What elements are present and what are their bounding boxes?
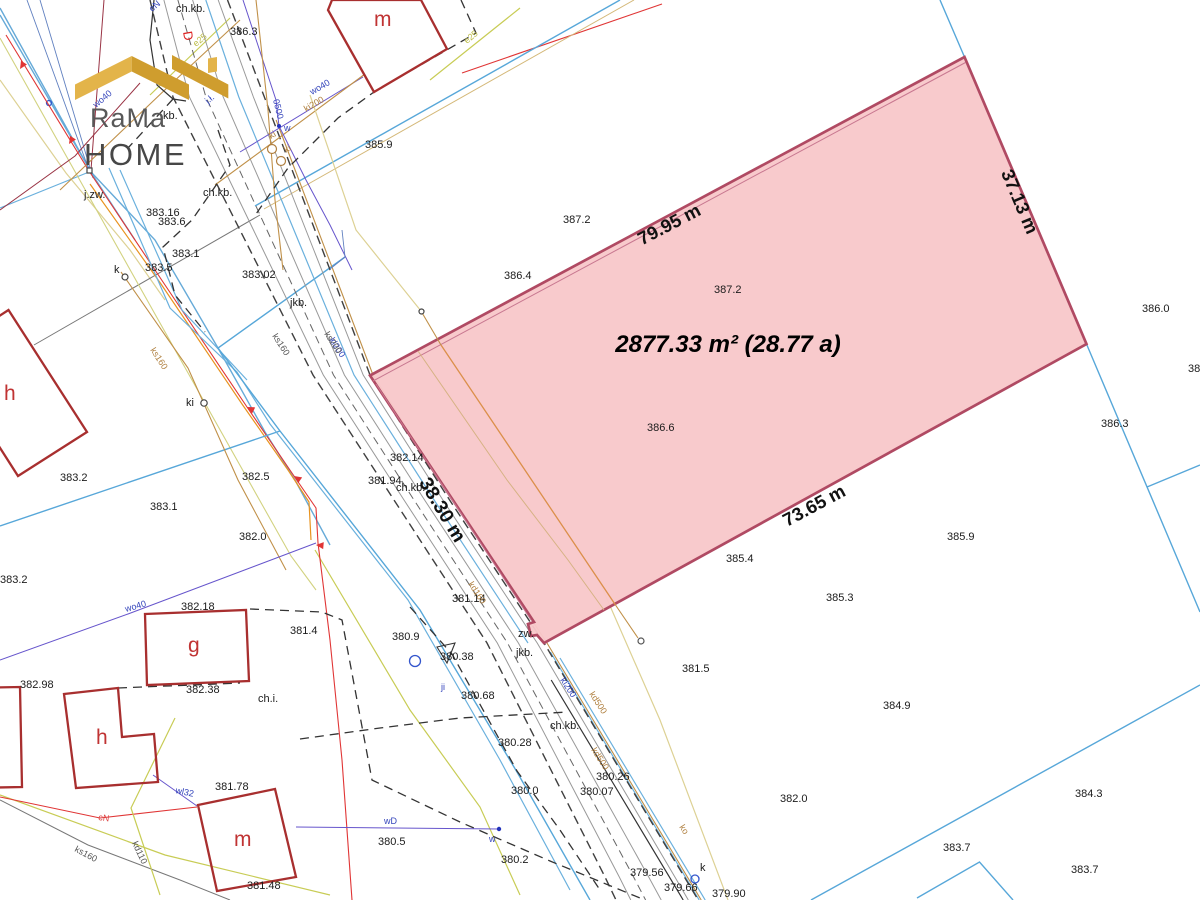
svg-text:jkb.: jkb. (515, 647, 533, 659)
svg-text:379.66: 379.66 (664, 882, 698, 894)
svg-text:380.28: 380.28 (498, 737, 532, 749)
svg-text:g: g (188, 634, 200, 657)
svg-text:380.5: 380.5 (378, 836, 406, 848)
svg-text:386.4: 386.4 (504, 270, 532, 282)
svg-text:h: h (4, 382, 16, 405)
svg-text:k: k (700, 862, 706, 874)
svg-text:383.02: 383.02 (242, 269, 276, 281)
svg-text:380.68: 380.68 (461, 690, 495, 702)
svg-text:387.2: 387.2 (563, 214, 591, 226)
svg-text:386.3: 386.3 (1101, 418, 1129, 430)
svg-text:ji: ji (440, 682, 445, 692)
svg-text:383.7: 383.7 (1071, 864, 1099, 876)
svg-text:385.9: 385.9 (947, 531, 975, 543)
svg-text:380.26: 380.26 (596, 771, 630, 783)
svg-text:HOME: HOME (84, 137, 187, 172)
svg-text:384.3: 384.3 (1075, 788, 1103, 800)
svg-text:kb.: kb. (163, 110, 178, 122)
svg-text:382.5: 382.5 (242, 471, 270, 483)
svg-text:RaMa: RaMa (90, 103, 166, 133)
svg-text:380.07: 380.07 (580, 786, 614, 798)
svg-text:ch.kb.: ch.kb. (203, 187, 232, 199)
svg-text:383.16: 383.16 (146, 207, 180, 219)
svg-text:h: h (96, 726, 108, 749)
svg-text:k: k (114, 264, 120, 276)
svg-text:383.5: 383.5 (145, 262, 173, 274)
svg-text:cN: cN (98, 812, 110, 823)
svg-text:ch.i.: ch.i. (258, 693, 278, 705)
svg-text:380.9: 380.9 (392, 631, 420, 643)
svg-text:383.2: 383.2 (60, 472, 88, 484)
svg-text:jkb.: jkb. (289, 297, 307, 309)
svg-text:385.3: 385.3 (826, 592, 854, 604)
svg-text:382.14: 382.14 (390, 452, 424, 464)
svg-text:zw.: zw. (518, 628, 534, 640)
svg-text:379.90: 379.90 (712, 888, 746, 900)
svg-text:382.18: 382.18 (181, 601, 215, 613)
svg-text:380.0: 380.0 (511, 785, 539, 797)
svg-text:381.78: 381.78 (215, 781, 249, 793)
svg-text:383.7: 383.7 (943, 842, 971, 854)
svg-text:385.4: 385.4 (726, 553, 754, 565)
svg-text:380.2: 380.2 (501, 854, 529, 866)
svg-text:ch.kb.: ch.kb. (176, 3, 205, 15)
svg-text:ch.kb.: ch.kb. (396, 482, 425, 494)
svg-text:381.5: 381.5 (682, 663, 710, 675)
svg-text:383.1: 383.1 (150, 501, 178, 513)
svg-text:m: m (234, 828, 252, 851)
svg-text:382.0: 382.0 (239, 531, 267, 543)
svg-text:380.38: 380.38 (440, 651, 474, 663)
svg-text:381.48: 381.48 (247, 880, 281, 892)
svg-text:ki: ki (186, 397, 194, 409)
svg-text:387.2: 387.2 (714, 284, 742, 296)
svg-text:381.4: 381.4 (290, 625, 318, 637)
svg-text:382.0: 382.0 (780, 793, 808, 805)
svg-text:379.56: 379.56 (630, 867, 664, 879)
svg-text:382.38: 382.38 (186, 684, 220, 696)
svg-text:383.1: 383.1 (172, 248, 200, 260)
svg-text:385.9: 385.9 (365, 139, 393, 151)
svg-text:386.3: 386.3 (230, 26, 258, 38)
svg-text:wD: wD (383, 816, 397, 826)
svg-text:386: 386 (1188, 363, 1200, 375)
svg-text:ch.kb.: ch.kb. (550, 720, 579, 732)
svg-text:w: w (283, 123, 291, 133)
svg-text:j.zw.: j.zw. (83, 189, 105, 201)
svg-text:m: m (374, 8, 392, 31)
svg-text:384.9: 384.9 (883, 700, 911, 712)
svg-text:382.98: 382.98 (20, 679, 54, 691)
svg-text:383.2: 383.2 (0, 574, 28, 586)
svg-text:386.0: 386.0 (1142, 303, 1170, 315)
svg-text:w: w (488, 834, 496, 844)
svg-text:2877.33 m² (28.77 a): 2877.33 m² (28.77 a) (614, 331, 840, 358)
svg-text:386.6: 386.6 (647, 422, 675, 434)
